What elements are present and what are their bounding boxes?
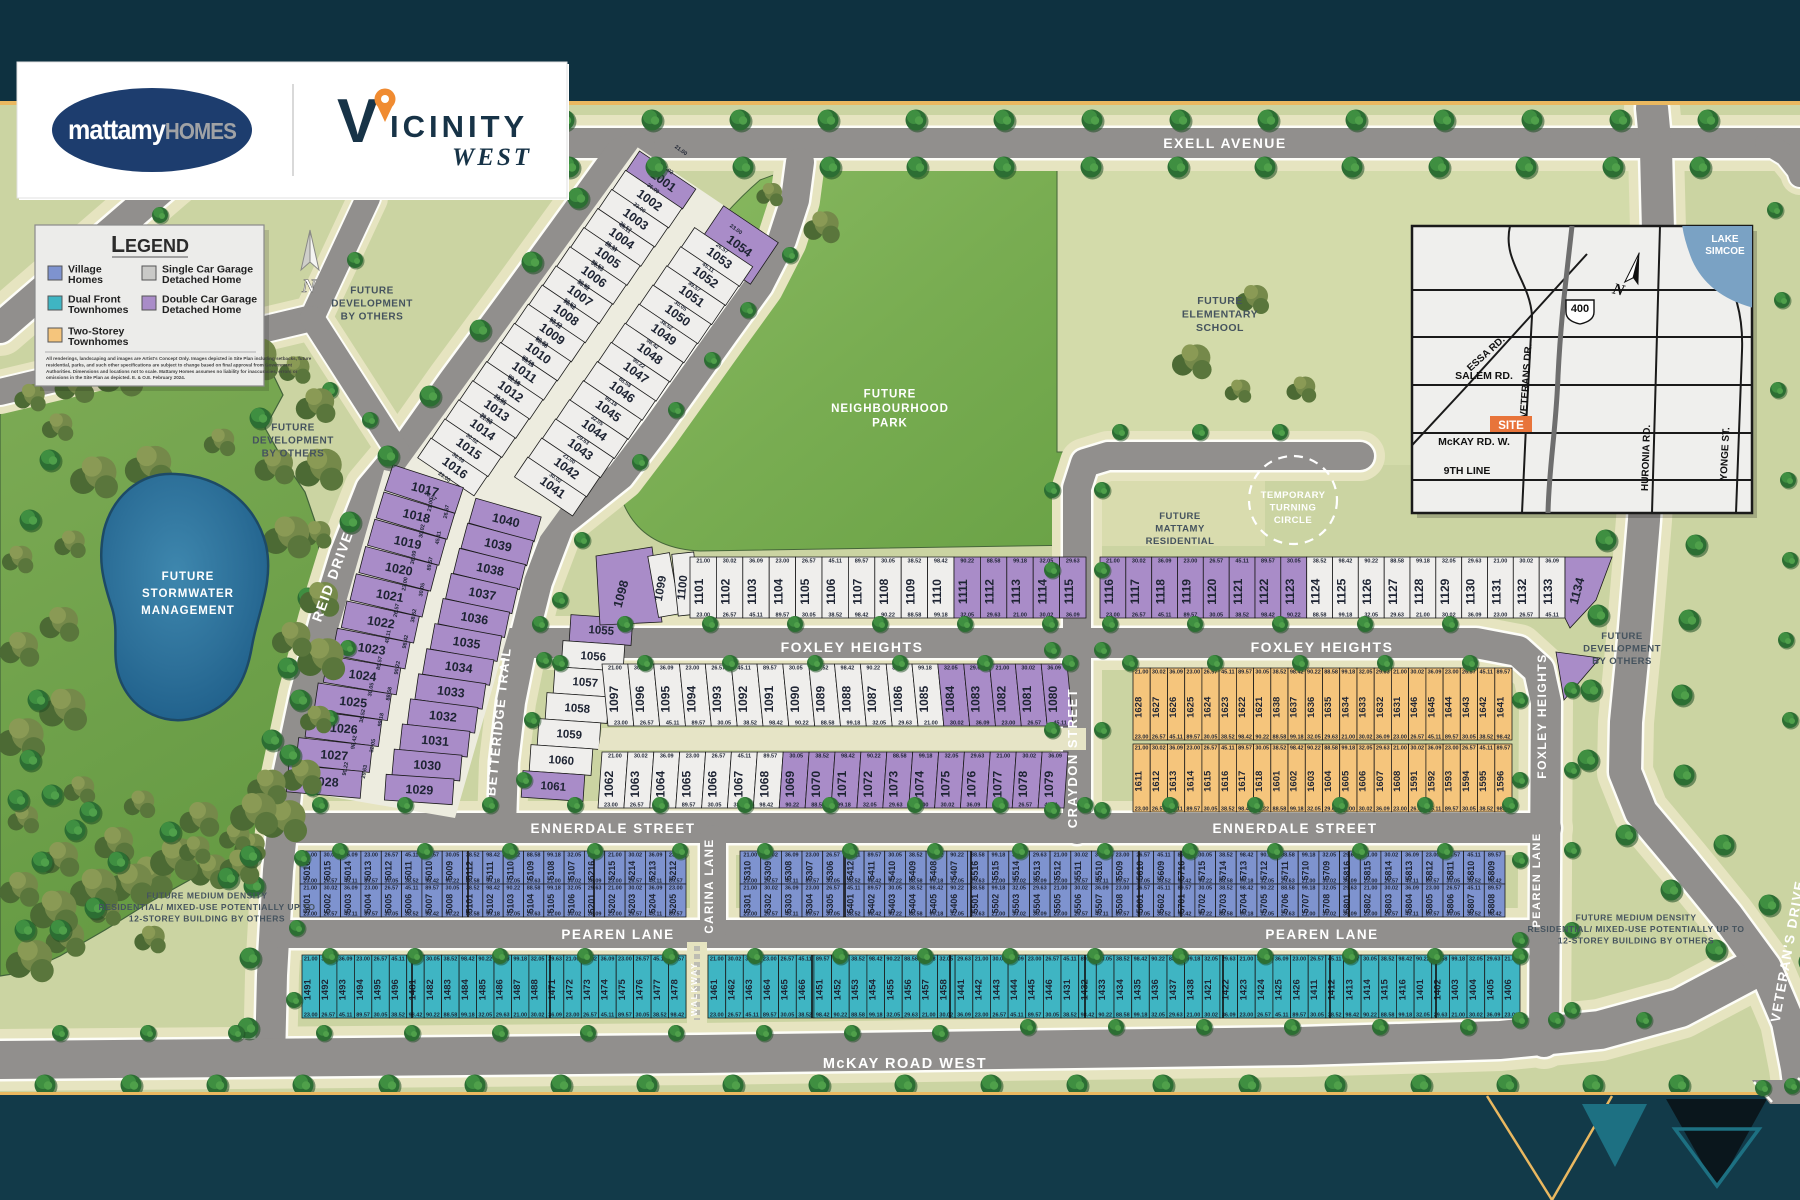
svg-text:21.00: 21.00 (1054, 886, 1068, 892)
svg-text:WALKWAY: WALKWAY (689, 962, 699, 1016)
svg-text:5815: 5815 (1363, 861, 1373, 881)
svg-text:88.58: 88.58 (971, 853, 985, 859)
svg-text:5102: 5102 (485, 894, 495, 914)
svg-text:32.05: 32.05 (1307, 735, 1321, 741)
svg-text:99.18: 99.18 (1290, 807, 1304, 813)
svg-text:5714: 5714 (1218, 861, 1228, 881)
svg-text:McKAY RD. W.: McKAY RD. W. (1438, 436, 1510, 448)
svg-text:30.02: 30.02 (1519, 559, 1533, 565)
svg-text:1627: 1627 (1151, 697, 1162, 718)
svg-text:38.52: 38.52 (909, 886, 923, 892)
svg-text:WEST: WEST (452, 144, 532, 171)
svg-text:29.63: 29.63 (1343, 886, 1357, 892)
svg-text:1593: 1593 (1444, 771, 1455, 792)
svg-text:DEVELOPMENT: DEVELOPMENT (331, 299, 413, 310)
svg-text:26.57: 26.57 (1209, 559, 1223, 565)
svg-text:1091: 1091 (762, 686, 776, 713)
svg-text:36.09: 36.09 (660, 754, 674, 760)
svg-text:5816: 5816 (1342, 861, 1352, 881)
svg-text:23.00: 23.00 (1186, 746, 1200, 752)
svg-text:26.57: 26.57 (728, 1013, 742, 1019)
svg-text:1412: 1412 (1327, 979, 1338, 1000)
svg-text:45.11: 45.11 (1169, 735, 1182, 741)
svg-text:1414: 1414 (1362, 979, 1373, 1001)
svg-text:30.05: 30.05 (446, 886, 460, 892)
svg-text:21.00: 21.00 (922, 1013, 936, 1019)
svg-text:26.57: 26.57 (630, 803, 644, 809)
svg-text:38.52: 38.52 (1479, 735, 1493, 741)
svg-text:1466: 1466 (797, 979, 808, 1000)
svg-text:99.18: 99.18 (513, 957, 527, 963)
svg-text:1642: 1642 (1478, 697, 1489, 718)
svg-text:5401: 5401 (846, 894, 856, 914)
svg-text:99.18: 99.18 (1341, 746, 1355, 752)
svg-text:32.05: 32.05 (1322, 853, 1336, 859)
svg-text:23.00: 23.00 (1186, 670, 1200, 676)
svg-text:88.58: 88.58 (1273, 735, 1287, 741)
svg-text:38.52: 38.52 (1219, 886, 1233, 892)
svg-text:1617: 1617 (1237, 771, 1248, 792)
svg-text:1434: 1434 (1115, 979, 1126, 1001)
svg-text:1455: 1455 (885, 979, 896, 1001)
svg-text:88.58: 88.58 (971, 886, 985, 892)
svg-text:89.57: 89.57 (1186, 807, 1200, 813)
svg-text:Homes: Homes (68, 274, 103, 286)
svg-text:21.00: 21.00 (1393, 670, 1407, 676)
svg-text:38.52: 38.52 (1063, 1013, 1077, 1019)
svg-text:23.00: 23.00 (364, 853, 378, 859)
svg-text:99.18: 99.18 (918, 666, 932, 672)
svg-text:5003: 5003 (343, 894, 353, 914)
svg-text:26.57: 26.57 (321, 1013, 335, 1019)
svg-text:30.05: 30.05 (446, 853, 460, 859)
svg-text:30.02: 30.02 (634, 754, 648, 760)
svg-text:26.57: 26.57 (826, 853, 840, 859)
svg-text:DEVELOPMENT: DEVELOPMENT (1583, 643, 1661, 654)
svg-text:89.57: 89.57 (1238, 670, 1252, 676)
svg-text:1120: 1120 (1205, 578, 1219, 604)
svg-text:21.00: 21.00 (1393, 746, 1407, 752)
svg-text:5610: 5610 (1135, 861, 1145, 881)
svg-text:26.57: 26.57 (583, 1013, 597, 1019)
svg-text:5013: 5013 (363, 861, 373, 881)
svg-text:1492: 1492 (320, 979, 331, 1000)
svg-text:1096: 1096 (633, 686, 647, 713)
svg-text:1114: 1114 (1035, 579, 1049, 605)
svg-text:45.11: 45.11 (1010, 1013, 1023, 1019)
svg-text:29.63: 29.63 (898, 721, 912, 727)
svg-text:89.57: 89.57 (1488, 886, 1502, 892)
svg-text:1625: 1625 (1185, 696, 1196, 718)
svg-text:23.00: 23.00 (618, 957, 632, 963)
svg-text:1594: 1594 (1461, 770, 1472, 792)
svg-text:30.05: 30.05 (1363, 957, 1377, 963)
svg-text:1626: 1626 (1168, 697, 1179, 718)
svg-text:5006: 5006 (404, 894, 414, 914)
svg-text:29.63: 29.63 (1033, 853, 1047, 859)
svg-text:99.18: 99.18 (1339, 613, 1353, 619)
svg-text:1476: 1476 (634, 979, 645, 1000)
svg-text:SCHOOL: SCHOOL (1196, 322, 1244, 334)
svg-text:5713: 5713 (1239, 861, 1249, 881)
svg-text:5204: 5204 (648, 894, 658, 914)
svg-text:1606: 1606 (1358, 771, 1369, 792)
svg-text:30.05: 30.05 (636, 1013, 650, 1019)
svg-text:NEIGHBOURHOOD: NEIGHBOURHOOD (831, 403, 949, 415)
svg-text:30.02: 30.02 (1012, 912, 1026, 918)
svg-text:5308: 5308 (784, 861, 794, 881)
svg-text:1431: 1431 (1062, 979, 1073, 1001)
svg-text:45.11: 45.11 (344, 912, 357, 918)
svg-text:45.11: 45.11 (798, 957, 811, 963)
svg-text:1087: 1087 (865, 686, 879, 713)
svg-text:1070: 1070 (809, 771, 823, 798)
svg-text:88.58: 88.58 (821, 721, 835, 727)
svg-text:1118: 1118 (1154, 579, 1168, 605)
svg-text:30.02: 30.02 (628, 853, 642, 859)
svg-text:38.52: 38.52 (847, 912, 861, 918)
svg-text:90.22: 90.22 (1307, 746, 1321, 752)
svg-text:5109: 5109 (526, 861, 536, 881)
svg-text:26.57: 26.57 (1462, 746, 1476, 752)
svg-text:30.05: 30.05 (881, 559, 895, 565)
svg-text:36.09: 36.09 (660, 666, 674, 672)
svg-text:23.00: 23.00 (975, 1013, 989, 1019)
svg-text:1462: 1462 (727, 979, 738, 1000)
svg-text:36.09: 36.09 (1405, 886, 1419, 892)
svg-text:5503: 5503 (1011, 894, 1021, 914)
svg-text:1425: 1425 (1274, 979, 1285, 1001)
svg-text:45.11: 45.11 (1405, 912, 1418, 918)
svg-text:36.09: 36.09 (1169, 746, 1183, 752)
svg-text:88.58: 88.58 (1219, 912, 1233, 918)
svg-text:45.11: 45.11 (1235, 559, 1248, 565)
svg-text:5505: 5505 (1053, 894, 1063, 914)
svg-text:90.22: 90.22 (950, 886, 964, 892)
svg-text:1458: 1458 (938, 979, 949, 1000)
svg-text:26.57: 26.57 (1257, 1013, 1271, 1019)
svg-text:89.57: 89.57 (364, 912, 378, 918)
svg-text:STORMWATER: STORMWATER (142, 588, 234, 600)
svg-text:30.05: 30.05 (888, 853, 902, 859)
svg-text:1482: 1482 (425, 979, 436, 1000)
svg-text:1613: 1613 (1168, 771, 1179, 792)
svg-text:5513: 5513 (1032, 861, 1042, 881)
svg-text:1453: 1453 (850, 979, 861, 1000)
svg-text:36.09: 36.09 (1487, 1013, 1501, 1019)
svg-text:23.00: 23.00 (806, 853, 820, 859)
svg-text:89.57: 89.57 (1238, 746, 1252, 752)
svg-text:23.00: 23.00 (566, 1013, 580, 1019)
svg-text:88.58: 88.58 (527, 853, 541, 859)
svg-text:89.57: 89.57 (1488, 853, 1502, 859)
svg-text:FOXLEY HEIGHTS: FOXLEY HEIGHTS (1535, 653, 1549, 778)
svg-text:1423: 1423 (1238, 979, 1249, 1000)
svg-text:30.02: 30.02 (1322, 912, 1336, 918)
svg-text:TEMPORARY: TEMPORARY (1261, 490, 1326, 501)
svg-text:30.05: 30.05 (1198, 886, 1212, 892)
svg-text:1027: 1027 (320, 747, 349, 763)
svg-text:FUTURE: FUTURE (1159, 511, 1201, 522)
svg-text:98.42: 98.42 (868, 912, 882, 918)
svg-text:1115: 1115 (1062, 579, 1076, 605)
svg-text:89.57: 89.57 (1116, 912, 1130, 918)
svg-text:1478: 1478 (669, 979, 680, 1000)
svg-text:5106: 5106 (566, 894, 576, 914)
svg-text:32.05: 32.05 (531, 957, 545, 963)
svg-text:BY OTHERS: BY OTHERS (262, 449, 325, 460)
svg-text:90.22: 90.22 (506, 886, 520, 892)
svg-text:30.02: 30.02 (1074, 853, 1088, 859)
svg-text:89.57: 89.57 (776, 613, 790, 619)
svg-text:5007: 5007 (424, 894, 434, 914)
svg-text:1426: 1426 (1291, 979, 1302, 1000)
svg-text:89.57: 89.57 (763, 1013, 777, 1019)
svg-text:5810: 5810 (1466, 861, 1476, 881)
svg-text:1433: 1433 (1097, 979, 1108, 1000)
svg-text:1481: 1481 (408, 979, 419, 1001)
svg-text:1638: 1638 (1271, 697, 1282, 718)
svg-text:32.05: 32.05 (1442, 559, 1456, 565)
svg-text:21.00: 21.00 (1341, 735, 1355, 741)
svg-text:30.02: 30.02 (723, 559, 737, 565)
svg-text:30.05: 30.05 (781, 1013, 795, 1019)
svg-text:1128: 1128 (1412, 578, 1426, 604)
svg-text:5403: 5403 (887, 894, 897, 914)
svg-text:5804: 5804 (1404, 894, 1414, 914)
svg-text:1474: 1474 (600, 979, 611, 1001)
svg-text:98.42: 98.42 (1081, 1013, 1095, 1019)
svg-text:36.09: 36.09 (1066, 613, 1080, 619)
svg-text:30.02: 30.02 (764, 886, 778, 892)
svg-text:1605: 1605 (1340, 770, 1351, 792)
svg-text:5814: 5814 (1383, 861, 1393, 881)
svg-text:1402: 1402 (1433, 979, 1444, 1000)
svg-text:FOXLEY HEIGHTS: FOXLEY HEIGHTS (781, 639, 924, 655)
svg-text:1475: 1475 (617, 979, 628, 1001)
svg-text:5402: 5402 (866, 894, 876, 914)
svg-text:21.00: 21.00 (304, 957, 318, 963)
svg-text:26.57: 26.57 (781, 957, 795, 963)
svg-text:23.00: 23.00 (364, 886, 378, 892)
svg-text:FUTURE: FUTURE (162, 571, 215, 583)
svg-text:90.22: 90.22 (867, 754, 881, 760)
svg-text:5806: 5806 (1445, 894, 1455, 914)
svg-text:90.22: 90.22 (1364, 559, 1378, 565)
svg-text:36.09: 36.09 (1033, 912, 1047, 918)
svg-text:1494: 1494 (355, 979, 366, 1001)
svg-text:30.02: 30.02 (939, 1013, 953, 1019)
svg-text:1452: 1452 (832, 979, 843, 1000)
svg-text:23.00: 23.00 (614, 721, 628, 727)
svg-text:5002: 5002 (323, 894, 333, 914)
svg-text:omissions in the Site Plan as: omissions in the Site Plan as depicted. … (46, 375, 185, 380)
svg-text:5015: 5015 (323, 861, 333, 881)
svg-text:21.00: 21.00 (1187, 1013, 1201, 1019)
svg-text:36.09: 36.09 (339, 957, 353, 963)
svg-text:1443: 1443 (991, 979, 1002, 1000)
svg-text:1055: 1055 (588, 624, 615, 638)
svg-text:98.42: 98.42 (930, 886, 944, 892)
svg-text:5609: 5609 (1156, 861, 1166, 881)
svg-text:1030: 1030 (413, 757, 442, 773)
svg-text:89.57: 89.57 (692, 721, 706, 727)
svg-text:1637: 1637 (1289, 697, 1300, 718)
svg-text:29.63: 29.63 (987, 613, 1001, 619)
svg-text:45.11: 45.11 (745, 1013, 758, 1019)
svg-text:1483: 1483 (442, 979, 453, 1000)
svg-text:1631: 1631 (1392, 696, 1403, 718)
svg-text:26.57: 26.57 (1410, 735, 1424, 741)
svg-text:1438: 1438 (1185, 979, 1196, 1000)
svg-text:98.42: 98.42 (934, 559, 948, 565)
svg-text:32.05: 32.05 (944, 666, 958, 672)
svg-text:36.09: 36.09 (601, 957, 615, 963)
svg-text:30.02: 30.02 (728, 957, 742, 963)
svg-text:45.11: 45.11 (405, 886, 418, 892)
svg-text:89.57: 89.57 (1497, 670, 1511, 676)
svg-text:30.05: 30.05 (1045, 1013, 1059, 1019)
svg-text:30.05: 30.05 (1198, 853, 1212, 859)
svg-text:5212: 5212 (668, 861, 678, 881)
svg-text:99.18: 99.18 (1290, 735, 1304, 741)
svg-text:99.18: 99.18 (1416, 559, 1430, 565)
svg-text:1451: 1451 (815, 979, 826, 1001)
svg-text:26.57: 26.57 (1384, 912, 1398, 918)
svg-text:5602: 5602 (1156, 894, 1166, 914)
svg-text:1122: 1122 (1257, 578, 1271, 604)
svg-text:36.09: 36.09 (1275, 957, 1289, 963)
svg-text:N: N (301, 276, 317, 297)
svg-text:21.00: 21.00 (303, 886, 317, 892)
svg-text:21.00: 21.00 (547, 912, 561, 918)
svg-text:5702: 5702 (1197, 894, 1207, 914)
svg-text:1084: 1084 (943, 686, 957, 713)
svg-text:1073: 1073 (887, 771, 901, 798)
svg-text:1635: 1635 (1323, 696, 1334, 718)
svg-text:90.22: 90.22 (478, 957, 492, 963)
svg-text:88.58: 88.58 (908, 613, 922, 619)
svg-text:99.18: 99.18 (1398, 1013, 1412, 1019)
svg-text:21.00: 21.00 (1106, 559, 1120, 565)
svg-text:90.22: 90.22 (426, 1013, 440, 1019)
svg-text:26.57: 26.57 (1204, 746, 1218, 752)
svg-text:FUTURE: FUTURE (271, 423, 315, 434)
svg-text:30.02: 30.02 (531, 1013, 545, 1019)
svg-text:89.57: 89.57 (868, 853, 882, 859)
svg-text:1111: 1111 (956, 579, 970, 604)
svg-text:1067: 1067 (731, 771, 745, 798)
svg-text:5410: 5410 (887, 861, 897, 881)
svg-text:23.00: 23.00 (806, 886, 820, 892)
svg-text:CARINA LANE: CARINA LANE (704, 838, 716, 933)
svg-text:1604: 1604 (1323, 770, 1334, 792)
svg-text:1446: 1446 (1044, 979, 1055, 1000)
svg-text:DEVELOPMENT: DEVELOPMENT (252, 436, 334, 447)
svg-text:21.00: 21.00 (608, 666, 622, 672)
svg-text:88.58: 88.58 (1313, 613, 1327, 619)
svg-text:1628: 1628 (1134, 697, 1145, 718)
svg-text:38.52: 38.52 (1221, 735, 1235, 741)
svg-text:90.22: 90.22 (1098, 1013, 1112, 1019)
svg-text:36.09: 36.09 (1468, 613, 1482, 619)
svg-text:21.00: 21.00 (1416, 613, 1430, 619)
svg-text:23.00: 23.00 (763, 957, 777, 963)
svg-text:88.58: 88.58 (1324, 746, 1338, 752)
svg-text:1608: 1608 (1392, 771, 1403, 792)
svg-text:90.22: 90.22 (834, 1013, 848, 1019)
svg-text:ELEMENTARY: ELEMENTARY (1182, 309, 1258, 321)
svg-text:1066: 1066 (706, 771, 720, 798)
svg-text:5508: 5508 (1115, 894, 1125, 914)
svg-text:5504: 5504 (1032, 894, 1042, 914)
svg-text:23.00: 23.00 (604, 803, 618, 809)
svg-text:1089: 1089 (814, 686, 828, 713)
svg-text:1064: 1064 (654, 771, 668, 798)
svg-text:1457: 1457 (921, 979, 932, 1000)
svg-text:99.18: 99.18 (1451, 957, 1465, 963)
svg-text:5203: 5203 (627, 894, 637, 914)
svg-text:1623: 1623 (1220, 697, 1231, 718)
svg-text:21.00: 21.00 (743, 886, 757, 892)
svg-text:32.05: 32.05 (567, 853, 581, 859)
svg-text:21.00: 21.00 (1302, 912, 1316, 918)
svg-text:23.00: 23.00 (1002, 721, 1016, 727)
svg-text:45.11: 45.11 (1479, 670, 1492, 676)
svg-text:26.57: 26.57 (826, 886, 840, 892)
svg-text:5101: 5101 (465, 894, 475, 914)
svg-text:1634: 1634 (1340, 696, 1351, 718)
svg-text:98.42: 98.42 (1178, 912, 1192, 918)
svg-text:89.57: 89.57 (356, 1013, 370, 1019)
svg-text:V: V (337, 87, 378, 156)
svg-text:1069: 1069 (783, 771, 797, 798)
svg-text:23.00: 23.00 (608, 912, 622, 918)
svg-text:23.00: 23.00 (1116, 886, 1130, 892)
svg-text:5112: 5112 (465, 861, 475, 880)
svg-text:1094: 1094 (684, 686, 698, 713)
svg-text:5405: 5405 (928, 894, 938, 914)
svg-text:89.57: 89.57 (1445, 807, 1459, 813)
svg-text:1607: 1607 (1375, 771, 1386, 792)
svg-text:1487: 1487 (512, 979, 523, 1000)
svg-text:98.42: 98.42 (855, 613, 869, 619)
svg-text:ICINITY: ICINITY (390, 109, 528, 144)
svg-text:1080: 1080 (1046, 686, 1060, 713)
svg-text:5509: 5509 (1115, 861, 1125, 881)
svg-text:30.05: 30.05 (1209, 613, 1223, 619)
svg-text:1632: 1632 (1375, 697, 1386, 718)
svg-text:36.09: 36.09 (1428, 670, 1442, 676)
svg-text:32.05: 32.05 (478, 1013, 492, 1019)
svg-text:5710: 5710 (1301, 861, 1311, 881)
svg-text:5708: 5708 (1321, 894, 1331, 914)
svg-text:21.00: 21.00 (1135, 670, 1149, 676)
svg-text:32.05: 32.05 (1359, 670, 1373, 676)
svg-text:89.57: 89.57 (1426, 912, 1440, 918)
svg-text:30.02: 30.02 (1359, 735, 1373, 741)
svg-text:FOXLEY HEIGHTS: FOXLEY HEIGHTS (1251, 639, 1394, 655)
svg-text:99.18: 99.18 (486, 912, 500, 918)
svg-text:1477: 1477 (652, 979, 663, 1000)
svg-text:5201: 5201 (587, 894, 597, 914)
svg-text:36.09: 36.09 (1376, 807, 1390, 813)
svg-text:1485: 1485 (477, 979, 488, 1001)
svg-text:23.00: 23.00 (686, 754, 700, 760)
svg-text:5703: 5703 (1218, 894, 1228, 914)
svg-text:1092: 1092 (736, 686, 750, 713)
svg-text:32.05: 32.05 (1204, 957, 1218, 963)
